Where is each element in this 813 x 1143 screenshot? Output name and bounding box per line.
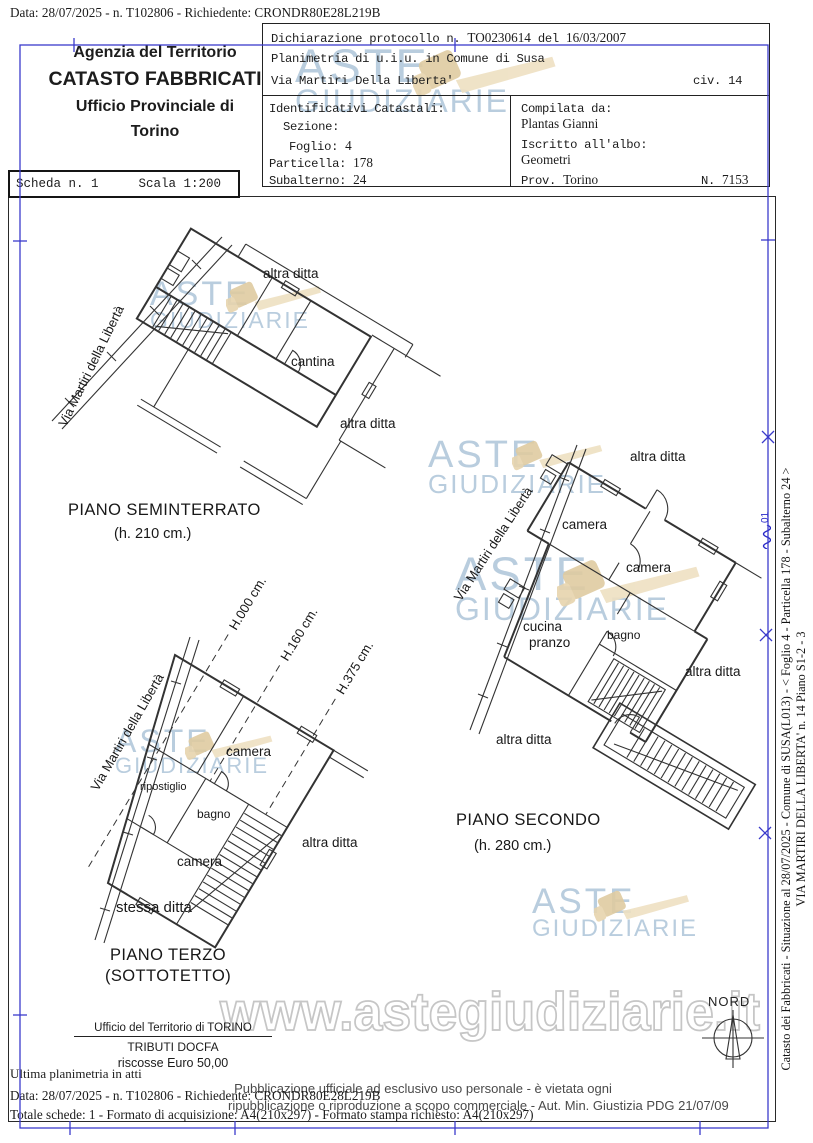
footer-atti: Ultima planimetria in atti [10,1066,142,1082]
subalterno-label: Subalterno: [269,174,346,188]
compiler-name: Plantas Gianni [521,116,598,132]
plan-secondo [434,434,774,829]
scheda-scale: Scala 1:200 [139,177,222,191]
protocol-value: TO0230614 [467,30,531,45]
plan-title: PIANO SECONDO [456,811,601,830]
declaration-table: Dichiarazione protocollo n. TO0230614 de… [262,23,770,187]
particella-row: Particella: 178 [269,155,373,171]
height-label: H.160 cm. [277,605,320,664]
room-label: bagno [197,807,230,821]
particella-label: Particella: [269,157,346,171]
prov-label: Prov. [521,174,556,188]
office-territory-line: Ufficio del Territorio di TORINO [74,1022,272,1037]
foglio-row: Foglio: 4 [289,138,352,154]
footer-totale-line: Totale schede: 1 - Formato di acquisizio… [10,1107,534,1123]
subalterno-row: Subalterno: 24 [269,172,366,188]
n-row: N. 7153 [701,172,748,188]
identifiers-title: Identificativi Catastali: [269,102,444,116]
scribble-icon [761,525,771,549]
foglio-label: Foglio: [289,140,338,154]
planimetria-line: Planimetria di u.i.u. in Comune di Susa [271,52,545,66]
protocol-line: Dichiarazione protocollo n. TO0230614 de… [271,30,626,46]
plan-title: PIANO SEMINTERRATO [68,501,261,520]
plan-height: (h. 210 cm.) [114,526,191,542]
office-block: Ufficio del Territorio di TORINO TRIBUTI… [74,1022,272,1070]
room-label: altra ditta [630,449,686,464]
room-label: cantina [291,354,335,369]
room-label: altra ditta [340,416,396,431]
side-caption: Catasto dei Fabbricati - Situazione al 2… [779,400,809,1138]
north-compass-icon: NORD [692,988,778,1080]
civ-number: civ. 14 [693,74,742,88]
sezione-row: Sezione: [283,120,339,134]
room-label: pranzo [529,635,570,650]
declaration-row: Dichiarazione protocollo n. TO0230614 de… [263,24,769,96]
del-label: del [538,32,559,46]
room-label: camera [562,517,607,532]
side-stamp: 01 [760,512,771,549]
side-caption-line1: Catasto dei Fabbricati - Situazione al 2… [779,400,794,1138]
prov-value: Torino [563,172,598,187]
plan-subtitle: (SOTTOTETTO) [105,967,231,986]
n-label: N. [701,174,715,188]
compass-label: NORD [708,994,750,1009]
foglio-value: 4 [345,138,352,153]
room-label: camera [226,744,271,759]
particella-value: 178 [353,155,373,170]
plan-seminterrato [99,216,447,532]
identifiers-cell: Identificativi Catastali: Sezione: Fogli… [263,96,511,186]
agency-line: Agenzia del Territorio [45,44,265,62]
albo-label: Iscritto all'albo: [521,138,647,152]
street-line: Via Martiri Della Liberta' [271,74,453,88]
side-stamp-text: 01 [760,512,771,523]
agency-line: CATASTO FABBRICATI [45,68,265,91]
side-caption-line2: VIA MARTIRI DELLA LIBERTA' n. 14 Piano S… [794,400,809,1138]
agency-line: Torino [45,123,265,141]
protocol-date: 16/03/2007 [566,30,626,45]
n-value: 7153 [722,172,748,187]
height-label: H.375 cm. [333,638,376,697]
room-label: altra ditta [496,732,552,747]
cadastral-plan-page: { "colors": { "frame_blue": "#3b3bcb", "… [0,0,813,1143]
room-label: ripostiglio [140,781,186,793]
compiler-cell: Compilata da: Plantas Gianni Iscritto al… [511,96,769,186]
protocol-label: Dichiarazione protocollo n. [271,32,460,46]
height-label: H.000 cm. [226,574,269,633]
room-label: stessa ditta [116,899,192,916]
room-label: altra ditta [685,664,741,679]
scheda-box: Scheda n. 1 Scala 1:200 [8,170,240,198]
request-info-line: Data: 28/07/2025 - n. T102806 - Richiede… [10,5,380,21]
scheda-number: Scheda n. 1 [16,177,99,191]
plan-title: PIANO TERZO [110,946,226,965]
room-label: altra ditta [263,266,319,281]
office-tributi-line: TRIBUTI DOCFA [74,1040,272,1054]
room-label: cucina [523,619,562,634]
plan-height: (h. 280 cm.) [474,838,551,854]
room-label: camera [626,560,671,575]
agency-header: Agenzia del Territorio CATASTO FABBRICAT… [45,44,265,141]
room-label: bagno [607,628,640,642]
compiler-label: Compilata da: [521,102,612,116]
subalterno-value: 24 [353,172,366,187]
room-label: altra ditta [302,835,358,850]
prov-row: Prov. Torino [521,172,598,188]
agency-line: Ufficio Provinciale di [45,98,265,116]
albo-value: Geometri [521,152,571,168]
room-label: camera [177,854,222,869]
